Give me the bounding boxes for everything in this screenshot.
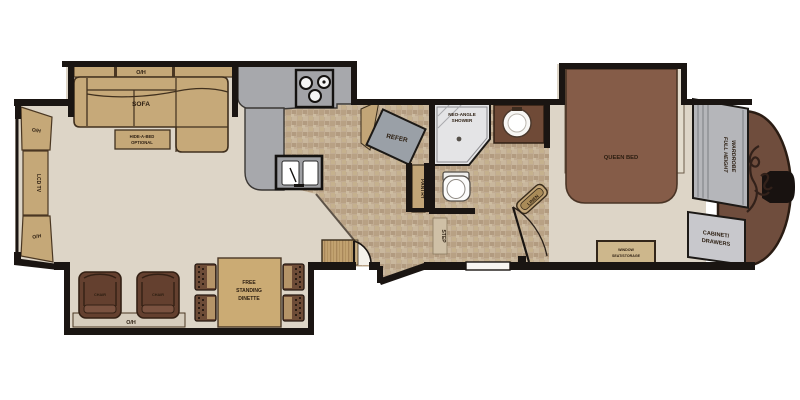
svg-text:O/H: O/H	[136, 70, 146, 76]
svg-text:CHAIR: CHAIR	[152, 293, 164, 297]
svg-text:LCD TV: LCD TV	[35, 174, 41, 193]
svg-text:HIDE-A-BED: HIDE-A-BED	[130, 134, 155, 139]
svg-text:CHAIR: CHAIR	[94, 293, 106, 297]
svg-text:WARDROBE: WARDROBE	[730, 139, 736, 172]
svg-text:SOFA: SOFA	[132, 101, 150, 108]
svg-text:WINDOW: WINDOW	[618, 248, 634, 252]
svg-text:STEP: STEP	[440, 229, 446, 243]
svg-text:SHOWER: SHOWER	[452, 118, 473, 123]
svg-text:QUEEN BED: QUEEN BED	[604, 155, 638, 161]
svg-text:DINETTE: DINETTE	[238, 296, 260, 302]
svg-text:OPTIONAL: OPTIONAL	[131, 140, 153, 145]
svg-text:FULL HEIGHT: FULL HEIGHT	[722, 136, 728, 173]
svg-text:SEAT/STORAGE: SEAT/STORAGE	[612, 254, 641, 258]
svg-text:NEO-ANGLE: NEO-ANGLE	[448, 112, 476, 117]
svg-text:STANDING: STANDING	[236, 288, 262, 294]
svg-text:O/H: O/H	[126, 320, 136, 326]
svg-text:FREE: FREE	[242, 280, 256, 286]
